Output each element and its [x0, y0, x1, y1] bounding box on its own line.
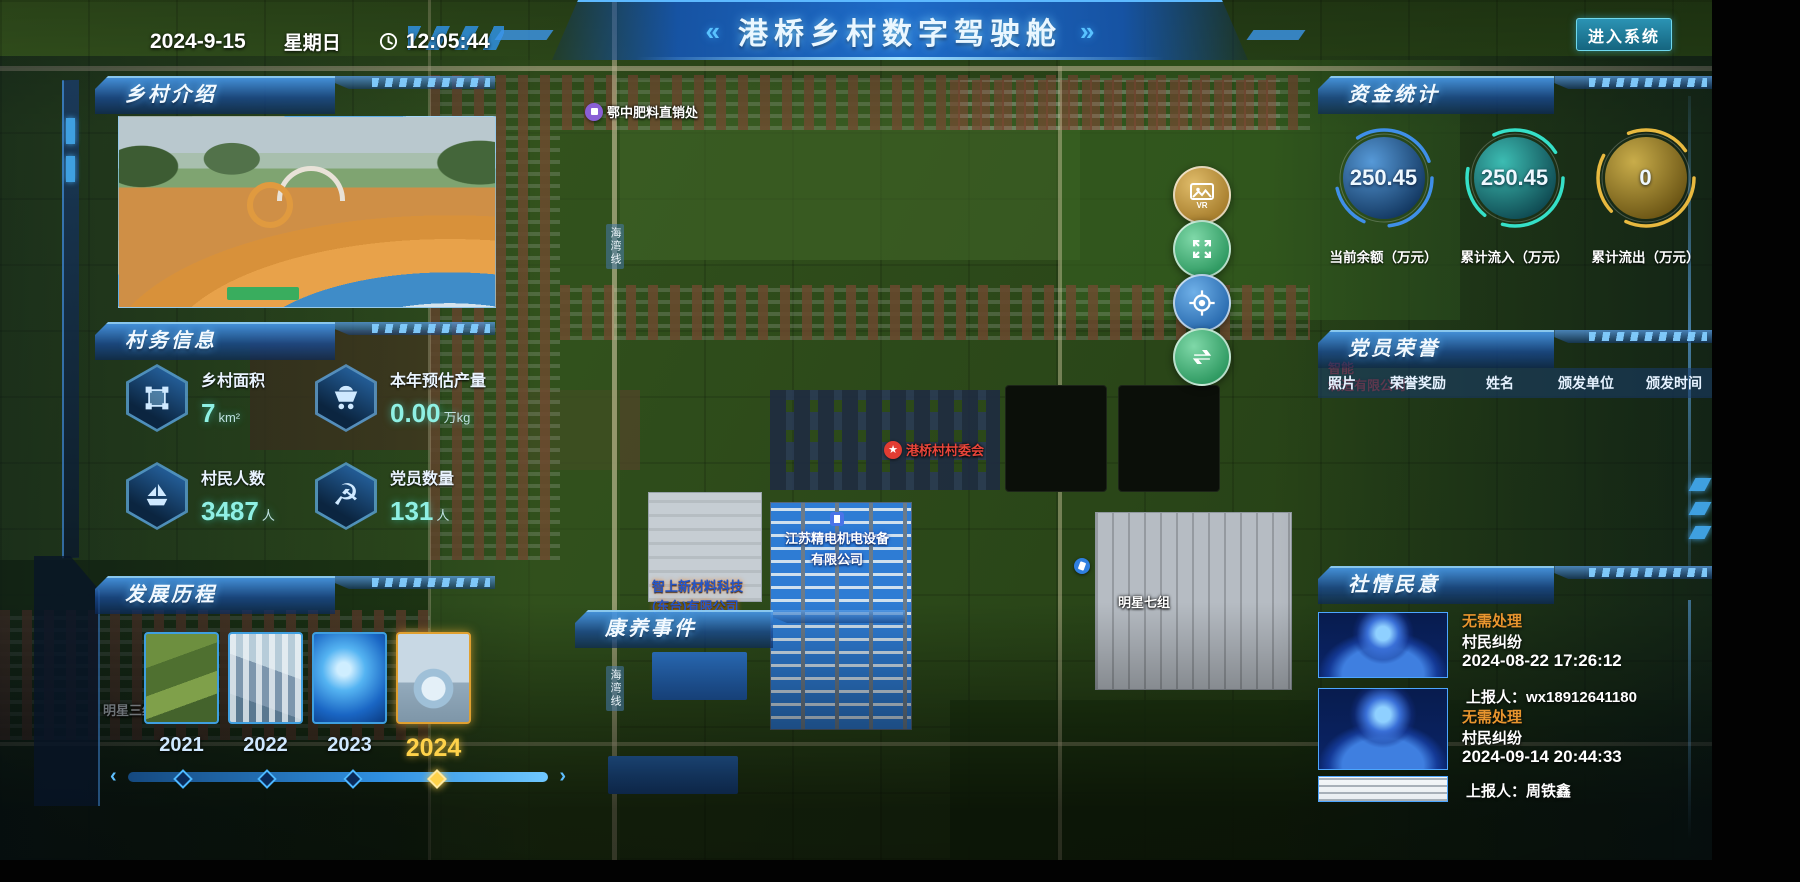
clock-icon — [379, 32, 398, 51]
timeline-slider[interactable]: ‹ › — [128, 772, 548, 782]
stat-label: 村民人数 — [201, 465, 275, 489]
stat-value: 0.00万kg — [390, 398, 486, 429]
col-photo: 照片 — [1318, 373, 1390, 393]
banner-left-wing — [494, 30, 553, 40]
poi-company-jingdian[interactable]: 江苏精电机电设备 有限公司 — [762, 512, 912, 568]
hex-inner — [129, 465, 185, 527]
poi-label: 明星七组 — [1118, 592, 1170, 611]
panel-title: 社情民意 — [1318, 574, 1440, 596]
weekday-text: 星期日 — [284, 28, 341, 55]
panel-title: 村务信息 — [95, 330, 217, 352]
stat-text: 党员数量 131人 — [390, 465, 454, 527]
panel-header-party-honor: 党员荣誉 — [1318, 330, 1712, 366]
date-text: 2024-9-15 — [150, 30, 246, 54]
development-years: 2021 2022 2023 2024 — [144, 734, 471, 763]
gauge-circle: 0 — [1594, 126, 1698, 230]
panel-title: 乡村介绍 — [95, 84, 217, 106]
thumbnail-2024[interactable] — [396, 632, 471, 724]
gauge-balance: 250.45 当前余额（万元） — [1318, 112, 1449, 266]
committee-marker-icon: ★ — [884, 441, 902, 459]
sentiment-item-webpage-thumb[interactable] — [1318, 776, 1448, 802]
stat-text: 本年预估产量 0.00万kg — [390, 367, 486, 429]
hex-inner — [318, 367, 374, 429]
stat-number: 7 — [201, 398, 215, 428]
slash-decoration — [372, 78, 490, 87]
thumbnail-2023[interactable] — [312, 632, 387, 724]
panel-title: 发展历程 — [95, 584, 217, 606]
sentiment-status: 无需处理 — [1462, 610, 1522, 631]
stat-unit: 人 — [436, 508, 449, 523]
col-award: 荣誉奖励 — [1390, 373, 1486, 393]
stat-text: 村民人数 3487人 — [201, 465, 275, 527]
title-right-arrows: » — [1080, 16, 1094, 47]
hex-inner: ☭ — [318, 465, 374, 527]
time-wrap: 12:05:44 — [379, 30, 490, 54]
banner-right-wing — [1246, 30, 1305, 40]
map-vr-button[interactable]: VR — [1173, 166, 1231, 224]
year-2023[interactable]: 2023 — [312, 734, 387, 763]
building-marker-icon — [830, 512, 844, 526]
slash-decoration — [1589, 78, 1707, 87]
col-issuer: 颁发单位 — [1558, 373, 1646, 393]
stat-village-area: 乡村面积 7km² — [126, 364, 309, 432]
header-tail — [335, 576, 495, 589]
hex-frame — [126, 462, 188, 530]
stat-label: 本年预估产量 — [390, 367, 486, 391]
expand-icon — [1188, 235, 1216, 263]
gauge-label: 当前余额（万元） — [1330, 246, 1438, 266]
header-bar: 村务信息 — [95, 322, 335, 360]
header-tail — [1554, 76, 1712, 89]
gauge-inflow: 250.45 累计流入（万元） — [1449, 112, 1580, 266]
poi-group7[interactable]: 明星七组 — [1118, 592, 1170, 611]
gauge-label: 累计流入（万元） — [1461, 246, 1569, 266]
poi-label: 鄂中肥料直销处 — [607, 102, 698, 121]
hex-inner — [129, 367, 185, 429]
gauge-value: 0 — [1594, 126, 1698, 230]
picture-vr-icon: VR — [1186, 179, 1218, 211]
slash-decoration — [1589, 568, 1707, 577]
locate-icon — [1187, 288, 1217, 318]
thumbnail-2021[interactable] — [144, 632, 219, 724]
cart-icon — [331, 383, 361, 413]
slider-prev-arrow[interactable]: ‹ — [110, 764, 117, 788]
village-photo — [118, 116, 496, 308]
party-icon: ☭ — [333, 481, 360, 511]
gauge-value: 250.45 — [1463, 126, 1567, 230]
poi-label-line1: 江苏精电机电设备 — [785, 528, 889, 547]
map-fullscreen-button[interactable] — [1173, 220, 1231, 278]
place-marker-icon — [1074, 558, 1090, 574]
gauge-label: 累计流出（万元） — [1592, 246, 1700, 266]
thumbnail-2022[interactable] — [228, 632, 303, 724]
slash-decoration — [372, 578, 490, 587]
slider-next-arrow[interactable]: › — [559, 764, 566, 788]
panel-header-village-info: 村务信息 — [95, 322, 495, 358]
stat-value: 131人 — [390, 496, 454, 527]
header-tail — [335, 322, 495, 335]
stat-unit: 万kg — [444, 410, 471, 425]
stat-number: 3487 — [201, 496, 259, 526]
road-label: 海湾线 — [606, 224, 624, 269]
gauge-value: 250.45 — [1332, 126, 1436, 230]
gauge-circle: 250.45 — [1332, 126, 1436, 230]
stat-label: 乡村面积 — [201, 367, 265, 391]
panel-header-development: 发展历程 — [95, 576, 495, 612]
panel-title: 资金统计 — [1318, 84, 1440, 106]
poi-label-line1: 智上新材料科技 — [652, 576, 743, 595]
panel-header-village-intro: 乡村介绍 — [95, 76, 495, 112]
photo-location-badge — [227, 287, 299, 300]
sentiment-category: 村民纠纷 — [1462, 727, 1522, 748]
panel-title: 党员荣誉 — [1318, 338, 1440, 360]
header-bar: 康养事件 — [575, 610, 773, 648]
left-frame-chip — [66, 118, 75, 144]
boat-icon — [142, 481, 172, 511]
header-tail — [1554, 566, 1712, 579]
datetime-bar: 2024-9-15 星期日 12:05:44 — [150, 28, 490, 55]
photo-trees — [119, 117, 495, 307]
hex-frame — [126, 364, 188, 432]
dashboard-screen: 鄂中肥料直销处 ★ 港桥村村委会 江苏精电机电设备 有限公司 智上新材料科技 (… — [0, 0, 1800, 882]
swap-arrows-icon — [1188, 343, 1216, 371]
photo-orange-loop — [247, 182, 293, 228]
vr-label: VR — [1196, 201, 1207, 210]
road-label: 海湾线 — [606, 666, 624, 711]
col-date: 颁发时间 — [1646, 373, 1712, 393]
header-bar: 社情民意 — [1318, 566, 1554, 604]
bottom-left-bracket — [34, 556, 100, 806]
poi-village-committee[interactable]: ★ 港桥村村委会 — [884, 440, 984, 459]
stat-value: 7km² — [201, 398, 265, 429]
stat-unit: 人 — [262, 508, 275, 523]
panel-header-funds: 资金统计 — [1318, 76, 1712, 112]
poi-label-line2: 有限公司 — [811, 549, 863, 568]
sentiment-time: 2024-08-22 17:26:12 — [1462, 651, 1622, 671]
year-2021[interactable]: 2021 — [144, 734, 219, 763]
stat-estimated-output: 本年预估产量 0.00万kg — [315, 364, 498, 432]
panel-header-health-events: 康养事件 — [575, 610, 905, 646]
panel-title: 康养事件 — [575, 618, 697, 640]
map-switch-button[interactable] — [1173, 328, 1231, 386]
header-tail — [335, 76, 495, 89]
page-title: 港桥乡村数字驾驶舱 — [738, 9, 1062, 53]
stat-value: 3487人 — [201, 496, 275, 527]
header-bar: 资金统计 — [1318, 76, 1554, 114]
title-left-arrows: « — [706, 16, 720, 47]
stat-label: 党员数量 — [390, 465, 454, 489]
year-2022[interactable]: 2022 — [228, 734, 303, 763]
map-locate-button[interactable] — [1173, 274, 1231, 332]
header-tail — [1554, 330, 1712, 343]
title-banner: « 港桥乡村数字驾驶舱 » — [552, 0, 1248, 60]
stat-unit: km² — [218, 410, 240, 425]
stat-party-member-count: ☭ 党员数量 131人 — [315, 462, 498, 530]
slash-decoration — [372, 324, 490, 333]
left-frame-chip — [66, 156, 75, 182]
col-name: 姓名 — [1486, 373, 1558, 393]
stat-villager-count: 村民人数 3487人 — [126, 462, 309, 530]
enter-system-button[interactable]: 进入系统 — [1576, 18, 1672, 51]
header-tail — [773, 610, 905, 623]
sentiment-category: 村民纠纷 — [1462, 631, 1522, 652]
header-bar: 乡村介绍 — [95, 76, 335, 114]
bottom-black-band — [0, 860, 1800, 882]
header-bar: 发展历程 — [95, 576, 335, 614]
development-thumbnails — [144, 632, 471, 724]
stat-number: 0.00 — [390, 398, 441, 428]
poi-label: 港桥村村委会 — [906, 440, 984, 459]
poi-fertilizer-store[interactable]: 鄂中肥料直销处 — [585, 102, 698, 121]
village-stats-grid: 乡村面积 7km² 本年预估产量 0.00万kg 村民人数 3487人 — [126, 364, 498, 530]
sentiment-status: 无需处理 — [1462, 706, 1522, 727]
sentiment-item-photo[interactable] — [1318, 688, 1448, 770]
header-bar: 党员荣誉 — [1318, 330, 1554, 368]
store-marker-icon — [585, 103, 603, 121]
hex-frame — [315, 364, 377, 432]
year-2024[interactable]: 2024 — [396, 734, 471, 763]
party-honor-table-header: 照片 荣誉奖励 姓名 颁发单位 颁发时间 — [1318, 368, 1712, 398]
gauge-circle: 250.45 — [1463, 126, 1567, 230]
sentiment-item-photo[interactable] — [1318, 612, 1448, 678]
gauge-outflow: 0 累计流出（万元） — [1580, 112, 1711, 266]
time-text: 12:05:44 — [406, 30, 490, 54]
fund-gauges: 250.45 当前余额（万元） 250.45 累计流入（万元） — [1318, 112, 1712, 266]
slash-decoration — [1589, 332, 1707, 341]
sentiment-reporter: 上报人：wx18912641180 — [1466, 686, 1637, 707]
sentiment-reporter: 上报人：周铁鑫 — [1466, 780, 1571, 801]
sentiment-time: 2024-09-14 20:44:33 — [1462, 747, 1622, 767]
panel-header-sentiment: 社情民意 — [1318, 566, 1712, 602]
right-frame-line2 — [1688, 600, 1691, 840]
left-frame-bracket — [62, 80, 79, 559]
poi-group7-marker[interactable] — [1074, 558, 1090, 574]
area-icon — [143, 384, 171, 412]
stat-text: 乡村面积 7km² — [201, 367, 265, 429]
right-black-band — [1712, 0, 1800, 882]
hex-frame: ☭ — [315, 462, 377, 530]
stat-number: 131 — [390, 496, 433, 526]
